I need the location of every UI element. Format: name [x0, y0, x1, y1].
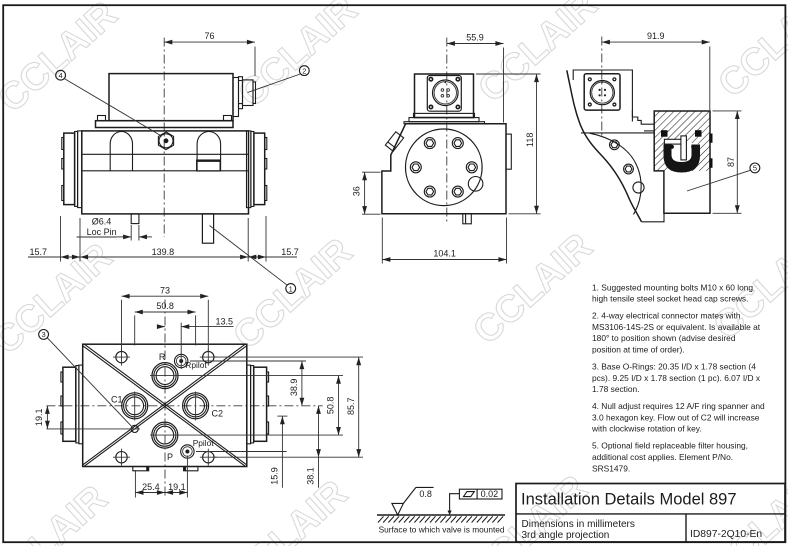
svg-text:50.8: 50.8	[156, 301, 174, 311]
svg-text:0.8: 0.8	[419, 489, 432, 499]
svg-text:Rpilot: Rpilot	[185, 360, 207, 370]
svg-text:4. Null adjust requires 12 A/F: 4. Null adjust requires 12 A/F ring span…	[592, 401, 765, 411]
svg-text:5. Optional field replaceable: 5. Optional field replaceable filter hou…	[592, 441, 748, 451]
svg-text:CCLAIR: CCLAIR	[0, 0, 125, 121]
svg-text:118: 118	[525, 133, 535, 147]
svg-text:87: 87	[726, 157, 736, 167]
svg-text:Ppilot: Ppilot	[193, 438, 215, 448]
svg-text:2. 4-way electrical connector: 2. 4-way electrical connector mates with	[592, 311, 741, 321]
svg-text:15.9: 15.9	[270, 467, 280, 485]
svg-text:pcs). 9.25 I/D x 1.78 section: pcs). 9.25 I/D x 1.78 section (1 pc). 6.…	[592, 373, 761, 383]
svg-text:3.0 hexagon key. Flow out of C: 3.0 hexagon key. Flow out of C2 will inc…	[592, 412, 760, 422]
svg-text:15.7: 15.7	[30, 247, 48, 257]
svg-text:CCLAIR: CCLAIR	[471, 0, 606, 111]
svg-text:19.1: 19.1	[168, 482, 186, 492]
svg-text:3rd angle projection: 3rd angle projection	[522, 530, 610, 541]
svg-text:CCLAIR: CCLAIR	[231, 0, 366, 116]
svg-text:180° to position shown (advise: 180° to position shown (advise desired	[592, 333, 736, 343]
svg-text:Loc Pin: Loc Pin	[87, 227, 117, 237]
svg-text:85.7: 85.7	[346, 397, 356, 415]
svg-text:R: R	[159, 352, 166, 362]
svg-text:high tensile steel socket head: high tensile steel socket head cap screw…	[592, 294, 748, 304]
svg-text:3. Base O-Rings: 20.35 I/D x 1: 3. Base O-Rings: 20.35 I/D x 1.78 sectio…	[592, 362, 756, 372]
svg-text:CCLAIR: CCLAIR	[466, 225, 601, 352]
svg-text:19.1: 19.1	[34, 409, 44, 427]
svg-text:104.1: 104.1	[433, 249, 456, 259]
svg-text:13.5: 13.5	[216, 317, 234, 327]
svg-text:25.4: 25.4	[142, 482, 160, 492]
svg-text:73: 73	[160, 285, 170, 295]
svg-text:91.9: 91.9	[647, 31, 665, 41]
svg-text:1.78 section.: 1.78 section.	[592, 384, 640, 394]
svg-text:2: 2	[302, 66, 306, 75]
svg-text:C2: C2	[212, 409, 224, 419]
svg-text:Dimensions in millimeters: Dimensions in millimeters	[522, 519, 635, 530]
svg-text:1. Suggested mounting bolts M1: 1. Suggested mounting bolts M10 x 60 lon…	[592, 282, 753, 292]
svg-text:55.9: 55.9	[466, 33, 484, 43]
svg-text:4: 4	[59, 71, 63, 80]
svg-text:additional cost applies. Eleme: additional cost applies. Element P/No.	[592, 452, 733, 462]
svg-text:P: P	[167, 452, 173, 462]
svg-text:Surface to which valve is moun: Surface to which valve is mounted	[379, 525, 505, 535]
svg-text:3: 3	[42, 330, 46, 339]
svg-text:C1: C1	[111, 395, 123, 405]
svg-text:38.1: 38.1	[306, 467, 316, 485]
svg-text:SRS1479.: SRS1479.	[592, 463, 630, 473]
svg-text:MS3106-14S-2S or equivalent. I: MS3106-14S-2S or equivalent. Is availabl…	[592, 322, 761, 332]
svg-text:1: 1	[289, 284, 293, 293]
svg-text:38.9: 38.9	[289, 379, 299, 397]
svg-text:CCLAIR: CCLAIR	[0, 477, 115, 546]
svg-text:ID897-2Q10-En: ID897-2Q10-En	[690, 529, 762, 540]
svg-text:CCLAIR: CCLAIR	[711, 0, 788, 106]
svg-text:76: 76	[204, 31, 214, 41]
svg-text:Ø6.4: Ø6.4	[92, 216, 112, 226]
svg-text:with clockwise rotation of key: with clockwise rotation of key.	[591, 424, 702, 434]
svg-text:0.02: 0.02	[481, 489, 499, 499]
svg-text:36: 36	[351, 186, 361, 196]
svg-text:Installation Details Model 897: Installation Details Model 897	[521, 491, 737, 509]
svg-text:50.8: 50.8	[326, 397, 336, 415]
svg-text:139.8: 139.8	[152, 247, 175, 257]
svg-text:15.7: 15.7	[281, 247, 299, 257]
svg-text:CCLAIR: CCLAIR	[221, 472, 356, 546]
svg-text:5: 5	[753, 164, 757, 173]
svg-text:position at time of order).: position at time of order).	[592, 345, 685, 355]
